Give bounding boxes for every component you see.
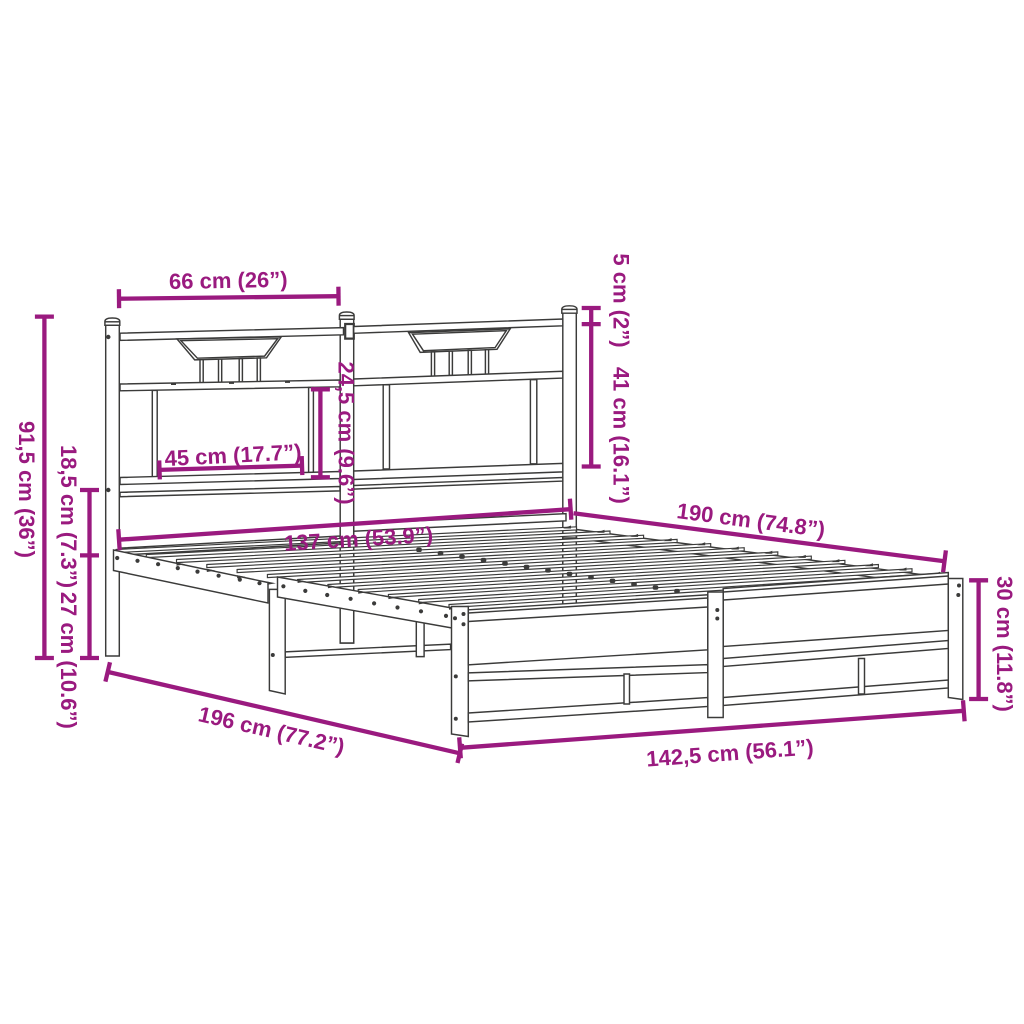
svg-text:30 cm (11.8”): 30 cm (11.8”) xyxy=(992,576,1017,712)
svg-text:5 cm (2”): 5 cm (2”) xyxy=(608,253,633,347)
svg-text:142,5 cm (56.1”): 142,5 cm (56.1”) xyxy=(645,734,814,771)
svg-text:24,5 cm (9.6”): 24,5 cm (9.6”) xyxy=(334,361,359,504)
svg-text:41 cm (16.1”): 41 cm (16.1”) xyxy=(608,367,633,504)
svg-text:91,5 cm (36”): 91,5 cm (36”) xyxy=(14,421,39,558)
svg-text:66 cm (26”): 66 cm (26”) xyxy=(169,267,288,294)
svg-text:27 cm (10.6”): 27 cm (10.6”) xyxy=(56,592,81,729)
svg-text:18,5 cm (7.3”): 18,5 cm (7.3”) xyxy=(56,445,81,588)
